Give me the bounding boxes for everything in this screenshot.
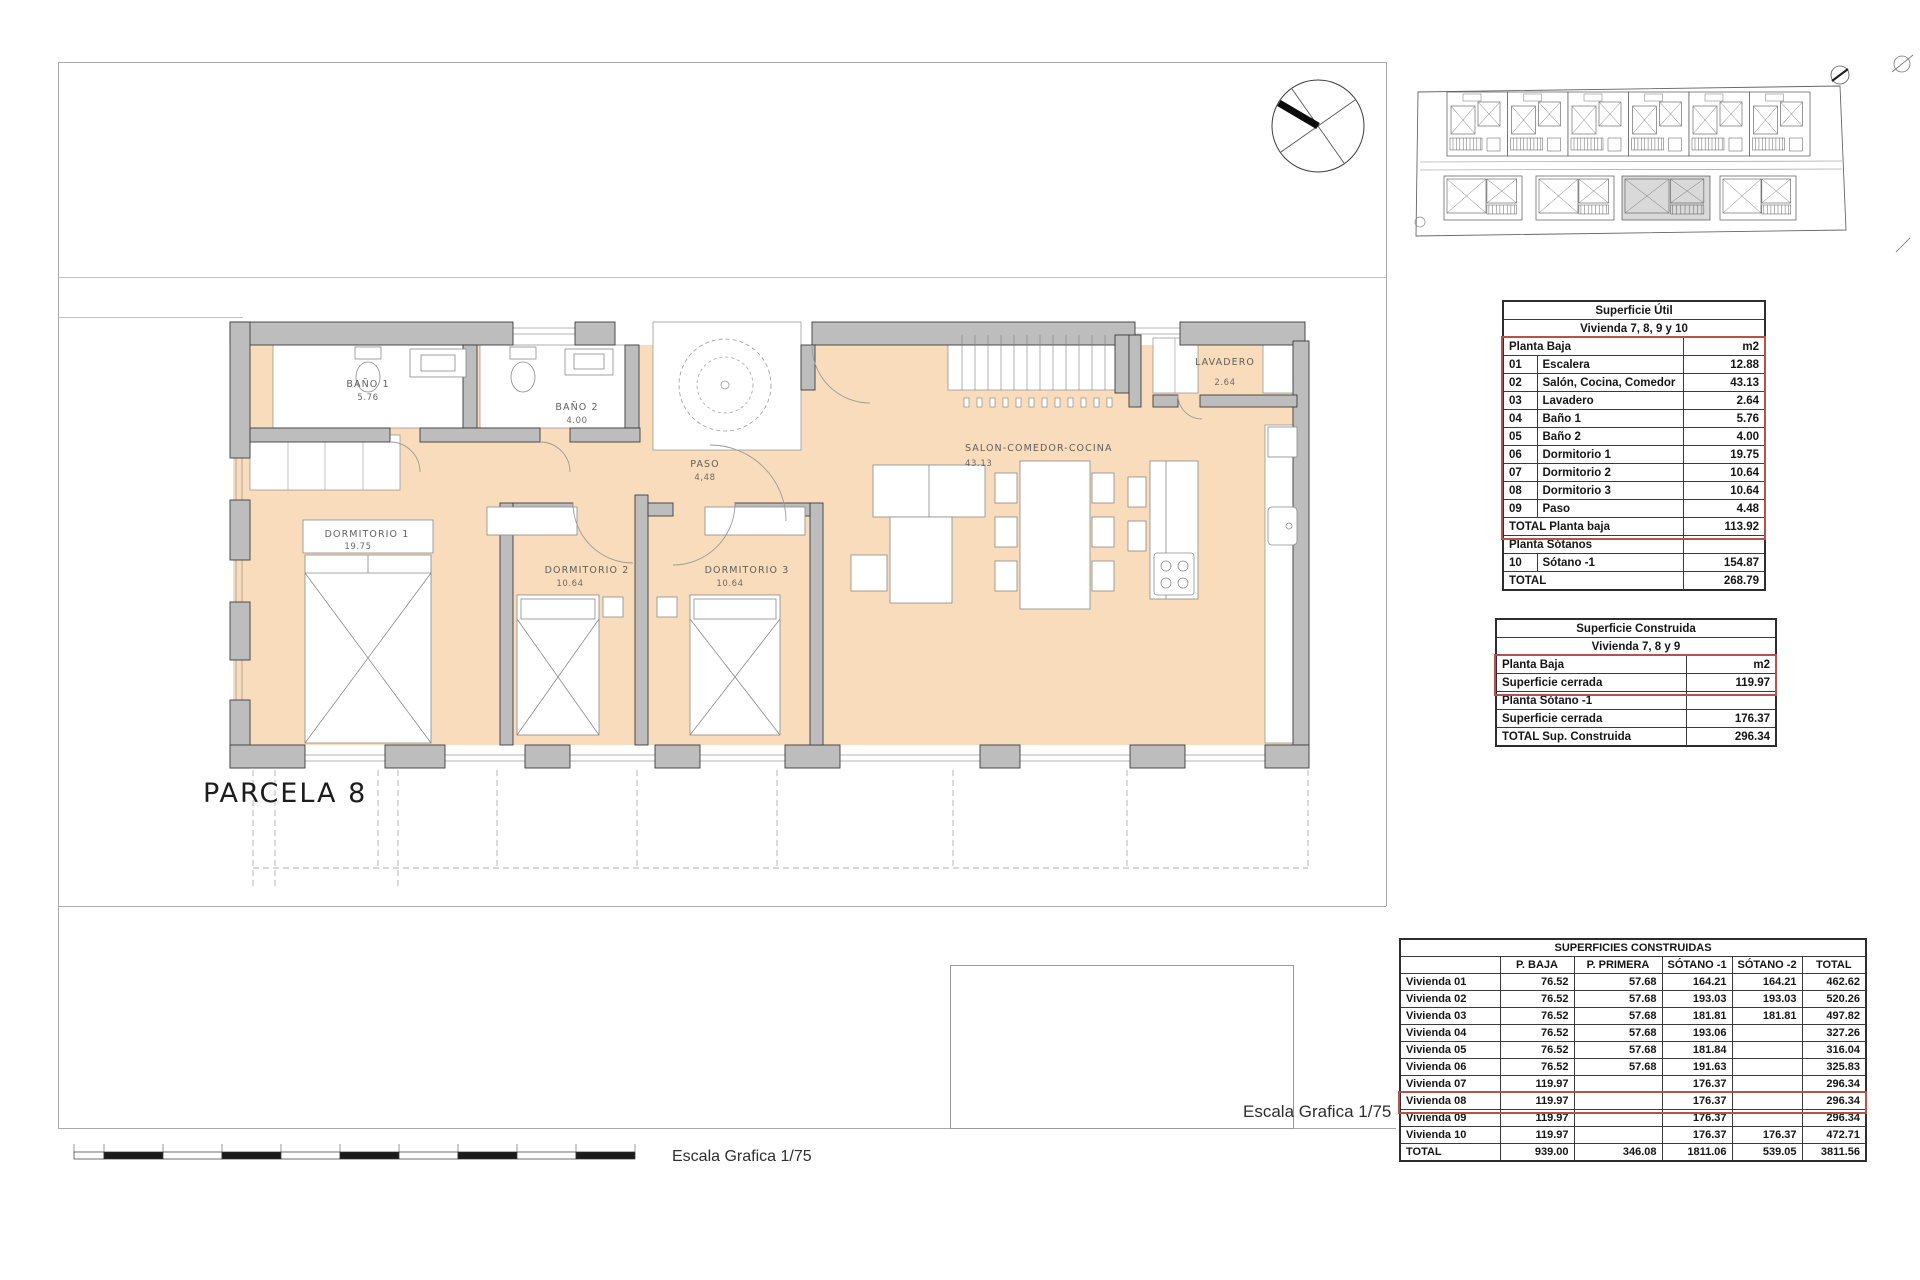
table-row: 09Paso4.48 xyxy=(1503,500,1765,518)
room-area: 10.64 xyxy=(716,579,743,589)
cell: 02 xyxy=(1503,374,1537,392)
table-row: Vivienda 0276.5257.68193.03193.03520.26 xyxy=(1400,991,1866,1008)
site-house xyxy=(1750,92,1811,156)
cell: 2.64 xyxy=(1683,392,1765,410)
table-row: 01Escalera12.88 xyxy=(1503,356,1765,374)
cell: 520.26 xyxy=(1802,991,1866,1008)
cell: 4.48 xyxy=(1683,500,1765,518)
room-label: DORMITORIO 3 xyxy=(705,565,790,576)
site-house xyxy=(1629,92,1690,156)
north-compass xyxy=(1266,70,1370,178)
cell: Dormitorio 1 xyxy=(1537,446,1683,464)
cell: Paso xyxy=(1537,500,1683,518)
cell: 07 xyxy=(1503,464,1537,482)
cell: 181.81 xyxy=(1662,1008,1732,1025)
column-header: SÓTANO -2 xyxy=(1732,957,1802,974)
cell: 10.64 xyxy=(1683,482,1765,500)
table-row: Vivienda 7, 8 y 9 xyxy=(1496,638,1776,656)
site-house xyxy=(1447,92,1508,156)
cell: 10.64 xyxy=(1683,464,1765,482)
table-row: 03Lavadero2.64 xyxy=(1503,392,1765,410)
room-area: 2.64 xyxy=(1214,378,1235,388)
cell: Baño 2 xyxy=(1537,428,1683,446)
boundary-line xyxy=(58,277,1386,278)
site-house xyxy=(1444,176,1522,220)
cell: Planta Baja xyxy=(1496,656,1686,674)
cell: Vivienda 01 xyxy=(1400,974,1500,991)
cell: 57.68 xyxy=(1574,974,1662,991)
cell xyxy=(1732,1093,1802,1110)
cell: 346.08 xyxy=(1574,1144,1662,1162)
cell: TOTAL Sup. Construida xyxy=(1496,728,1686,747)
cell: 176.37 xyxy=(1732,1127,1802,1144)
graphic-scale-bar xyxy=(68,1128,688,1174)
cell: 325.83 xyxy=(1802,1059,1866,1076)
cell xyxy=(1732,1042,1802,1059)
cell: Vivienda 09 xyxy=(1400,1110,1500,1127)
cell: 462.62 xyxy=(1802,974,1866,991)
room-area: 4.00 xyxy=(566,416,587,426)
boundary-line xyxy=(58,62,59,1128)
cell: 296.34 xyxy=(1802,1110,1866,1127)
table-title: Superficie Útil xyxy=(1503,301,1765,320)
cell: Salón, Cocina, Comedor xyxy=(1537,374,1683,392)
superficies-construidas-rows: Vivienda 0176.5257.68164.21164.21462.62V… xyxy=(1400,974,1866,1162)
table-row: Superficie Útil xyxy=(1503,301,1765,320)
site-house xyxy=(1536,176,1614,220)
room-label: BAÑO 2 xyxy=(555,402,598,413)
cell: Planta Sótanos xyxy=(1503,536,1683,554)
cell: 04 xyxy=(1503,410,1537,428)
table-row: 05Baño 24.00 xyxy=(1503,428,1765,446)
table-row: Vivienda 10119.97176.37176.37472.71 xyxy=(1400,1127,1866,1144)
cell: 472.71 xyxy=(1802,1127,1866,1144)
table-row: 08Dormitorio 310.64 xyxy=(1503,482,1765,500)
cell: m2 xyxy=(1683,338,1765,356)
site-house xyxy=(1508,92,1569,156)
cell: 57.68 xyxy=(1574,991,1662,1008)
cell: Dormitorio 2 xyxy=(1537,464,1683,482)
cell: 176.37 xyxy=(1662,1110,1732,1127)
column-header: TOTAL xyxy=(1802,957,1866,974)
util-header-row: Planta Baja m2 xyxy=(1503,338,1765,356)
cell: 176.37 xyxy=(1686,710,1776,728)
superficie-util-table: Superficie Útil Vivienda 7, 8, 9 y 10 Pl… xyxy=(1502,300,1764,591)
table-title: Superficie Construida xyxy=(1496,619,1776,638)
column-header: P. PRIMERA xyxy=(1574,957,1662,974)
cell: Vivienda 06 xyxy=(1400,1059,1500,1076)
table-row: Vivienda 0576.5257.68181.84316.04 xyxy=(1400,1042,1866,1059)
cell: 01 xyxy=(1503,356,1537,374)
cell: Vivienda 03 xyxy=(1400,1008,1500,1025)
superficies-construidas-table: SUPERFICIES CONSTRUIDAS P. BAJA P. PRIME… xyxy=(1399,938,1865,1162)
cell: Planta Sótano -1 xyxy=(1496,692,1686,710)
cell: 316.04 xyxy=(1802,1042,1866,1059)
cell: 191.63 xyxy=(1662,1059,1732,1076)
table-row: 10 Sótano -1 154.87 xyxy=(1503,554,1765,572)
cell: 10 xyxy=(1503,554,1537,572)
site-house xyxy=(1568,92,1629,156)
table-row: TOTAL 268.79 xyxy=(1503,572,1765,591)
cell: 193.06 xyxy=(1662,1025,1732,1042)
room-label: SALON-COMEDOR-COCINA xyxy=(965,443,1113,454)
table-row: 06Dormitorio 119.75 xyxy=(1503,446,1765,464)
siteplan-north-icon xyxy=(1831,66,1849,84)
superficie-construida-rows: Planta Bajam2Superficie cerrada119.97Pla… xyxy=(1496,656,1776,747)
cell: 119.97 xyxy=(1500,1093,1574,1110)
cell: 296.34 xyxy=(1802,1093,1866,1110)
table-row: Planta Sótano -1 xyxy=(1496,692,1776,710)
cell: 1811.06 xyxy=(1662,1144,1732,1162)
cell xyxy=(1732,1025,1802,1042)
table-row: Superficie cerrada119.97 xyxy=(1496,674,1776,692)
cell: 193.03 xyxy=(1662,991,1732,1008)
cell: 176.37 xyxy=(1662,1076,1732,1093)
cell: 181.81 xyxy=(1732,1008,1802,1025)
cell xyxy=(1574,1093,1662,1110)
cell: 296.34 xyxy=(1802,1076,1866,1093)
room-area: 5.76 xyxy=(357,393,378,403)
cell: 06 xyxy=(1503,446,1537,464)
table-subtitle: Vivienda 7, 8, 9 y 10 xyxy=(1503,320,1765,338)
room-label: BAÑO 1 xyxy=(346,379,389,390)
plan-sheet: { "plan": { "parcela": "PARCELA 8", "sca… xyxy=(0,0,1920,1280)
table-row: 02Salón, Cocina, Comedor43.13 xyxy=(1503,374,1765,392)
cell: 327.26 xyxy=(1802,1025,1866,1042)
cell: Dormitorio 3 xyxy=(1537,482,1683,500)
room-label: PASO xyxy=(690,459,720,470)
cell xyxy=(1732,1059,1802,1076)
cell: 497.82 xyxy=(1802,1008,1866,1025)
cell: Baño 1 xyxy=(1537,410,1683,428)
cell: 3811.56 xyxy=(1802,1144,1866,1162)
parcela-label: PARCELA 8 xyxy=(203,778,367,809)
cell xyxy=(1683,536,1765,554)
cell: Vivienda 10 xyxy=(1400,1127,1500,1144)
table-row: Vivienda 0476.5257.68193.06327.26 xyxy=(1400,1025,1866,1042)
cell: Escalera xyxy=(1537,356,1683,374)
util-total-pb-row: TOTAL Planta baja 113.92 xyxy=(1503,518,1765,536)
table-row: TOTAL939.00346.081811.06539.053811.56 xyxy=(1400,1144,1866,1162)
cell: TOTAL xyxy=(1503,572,1683,591)
cell xyxy=(1686,692,1776,710)
cell xyxy=(1732,1110,1802,1127)
cell: 119.97 xyxy=(1686,674,1776,692)
superficie-util-rows: 01Escalera12.8802Salón, Cocina, Comedor4… xyxy=(1503,356,1765,518)
cell: 539.05 xyxy=(1732,1144,1802,1162)
cell: 76.52 xyxy=(1500,1042,1574,1059)
site-house xyxy=(1622,176,1710,220)
cell: 76.52 xyxy=(1500,991,1574,1008)
cell: 4.00 xyxy=(1683,428,1765,446)
table-row: 04Baño 15.76 xyxy=(1503,410,1765,428)
cell: 76.52 xyxy=(1500,1025,1574,1042)
table-row: Vivienda 0176.5257.68164.21164.21462.62 xyxy=(1400,974,1866,991)
table-title: SUPERFICIES CONSTRUIDAS xyxy=(1400,939,1866,957)
table-row: Vivienda 0676.5257.68191.63325.83 xyxy=(1400,1059,1866,1076)
cell: Vivienda 05 xyxy=(1400,1042,1500,1059)
scale-label-right: Escala Grafica 1/75 xyxy=(1243,1102,1391,1122)
cell: 03 xyxy=(1503,392,1537,410)
table-row: Vivienda 0376.5257.68181.81181.81497.82 xyxy=(1400,1008,1866,1025)
cell: 57.68 xyxy=(1574,1008,1662,1025)
table-row: Vivienda 7, 8, 9 y 10 xyxy=(1503,320,1765,338)
room-label: DORMITORIO 2 xyxy=(545,565,630,576)
room-area: 10.64 xyxy=(556,579,583,589)
table-row: Superficie cerrada176.37 xyxy=(1496,710,1776,728)
siteplan-bottom-row xyxy=(1444,176,1796,220)
cell: 76.52 xyxy=(1500,974,1574,991)
cell xyxy=(1574,1076,1662,1093)
table-row: Vivienda 09119.97176.37296.34 xyxy=(1400,1110,1866,1127)
cell xyxy=(1574,1110,1662,1127)
cell: 119.97 xyxy=(1500,1110,1574,1127)
cell: 154.87 xyxy=(1683,554,1765,572)
table-row: TOTAL Sup. Construida296.34 xyxy=(1496,728,1776,747)
cell: 939.00 xyxy=(1500,1144,1574,1162)
cell: 113.92 xyxy=(1683,518,1765,536)
cell: 08 xyxy=(1503,482,1537,500)
cell xyxy=(1574,1127,1662,1144)
cell: Vivienda 02 xyxy=(1400,991,1500,1008)
room-label: LAVADERO xyxy=(1195,357,1255,368)
column-header xyxy=(1400,957,1500,974)
cell: 5.76 xyxy=(1683,410,1765,428)
table-row: Planta Bajam2 xyxy=(1496,656,1776,674)
superficie-construida-table: Superficie Construida Vivienda 7, 8 y 9 … xyxy=(1495,618,1775,747)
terrace-dashed-lines xyxy=(225,770,1340,910)
boundary-line xyxy=(58,317,243,318)
cell: 57.68 xyxy=(1574,1042,1662,1059)
table-header-row: P. BAJA P. PRIMERA SÓTANO -1 SÓTANO -2 T… xyxy=(1400,957,1866,974)
cell: Superficie cerrada xyxy=(1496,710,1686,728)
cell: 19.75 xyxy=(1683,446,1765,464)
cell: Lavadero xyxy=(1537,392,1683,410)
cell: Sótano -1 xyxy=(1537,554,1683,572)
site-house xyxy=(1720,176,1796,220)
boundary-line xyxy=(1386,62,1387,906)
cell: Planta Baja xyxy=(1503,338,1683,356)
cell: 164.21 xyxy=(1732,974,1802,991)
cell: Superficie cerrada xyxy=(1496,674,1686,692)
cell: 57.68 xyxy=(1574,1025,1662,1042)
cell: 05 xyxy=(1503,428,1537,446)
cell: TOTAL xyxy=(1400,1144,1500,1162)
cell: 164.21 xyxy=(1662,974,1732,991)
cell: 76.52 xyxy=(1500,1008,1574,1025)
cell: 119.97 xyxy=(1500,1076,1574,1093)
cell: Vivienda 08 xyxy=(1400,1093,1500,1110)
room-area: 4,48 xyxy=(694,473,715,483)
table-row: Vivienda 08119.97176.37296.34 xyxy=(1400,1093,1866,1110)
cell: 76.52 xyxy=(1500,1059,1574,1076)
cell: 09 xyxy=(1503,500,1537,518)
table-row: 07Dormitorio 210.64 xyxy=(1503,464,1765,482)
cell: 181.84 xyxy=(1662,1042,1732,1059)
cell: TOTAL Planta baja xyxy=(1503,518,1683,536)
cell: m2 xyxy=(1686,656,1776,674)
column-header: SÓTANO -1 xyxy=(1662,957,1732,974)
table-row: Superficie Construida xyxy=(1496,619,1776,638)
room-area: 19.75 xyxy=(344,542,371,552)
floor-plan: BAÑO 1 5.76 BAÑO 2 4.00 PASO 4,48 DORMIT… xyxy=(225,315,1310,780)
cell: 193.03 xyxy=(1732,991,1802,1008)
boundary-line xyxy=(58,62,1386,63)
cell: 43.13 xyxy=(1683,374,1765,392)
cell: 119.97 xyxy=(1500,1127,1574,1144)
scale-segments xyxy=(74,1144,635,1159)
cell: 296.34 xyxy=(1686,728,1776,747)
column-header: P. BAJA xyxy=(1500,957,1574,974)
siteplan-top-row xyxy=(1447,92,1810,156)
cell: 268.79 xyxy=(1683,572,1765,591)
room-label: DORMITORIO 1 xyxy=(325,529,410,540)
table-row: Vivienda 07119.97176.37296.34 xyxy=(1400,1076,1866,1093)
cell: 176.37 xyxy=(1662,1093,1732,1110)
cell xyxy=(1732,1076,1802,1093)
cell: Vivienda 04 xyxy=(1400,1025,1500,1042)
site-house xyxy=(1689,92,1750,156)
cell: 57.68 xyxy=(1574,1059,1662,1076)
room-area: 43.13 xyxy=(965,459,992,469)
table-subtitle: Vivienda 7, 8 y 9 xyxy=(1496,638,1776,656)
table-row: SUPERFICIES CONSTRUIDAS xyxy=(1400,939,1866,957)
cell: 176.37 xyxy=(1662,1127,1732,1144)
table-row: Planta Sótanos xyxy=(1503,536,1765,554)
cell: Vivienda 07 xyxy=(1400,1076,1500,1093)
cell: 12.88 xyxy=(1683,356,1765,374)
scale-label-bottom: Escala Grafica 1/75 xyxy=(672,1148,812,1166)
site-plan xyxy=(1410,62,1920,257)
